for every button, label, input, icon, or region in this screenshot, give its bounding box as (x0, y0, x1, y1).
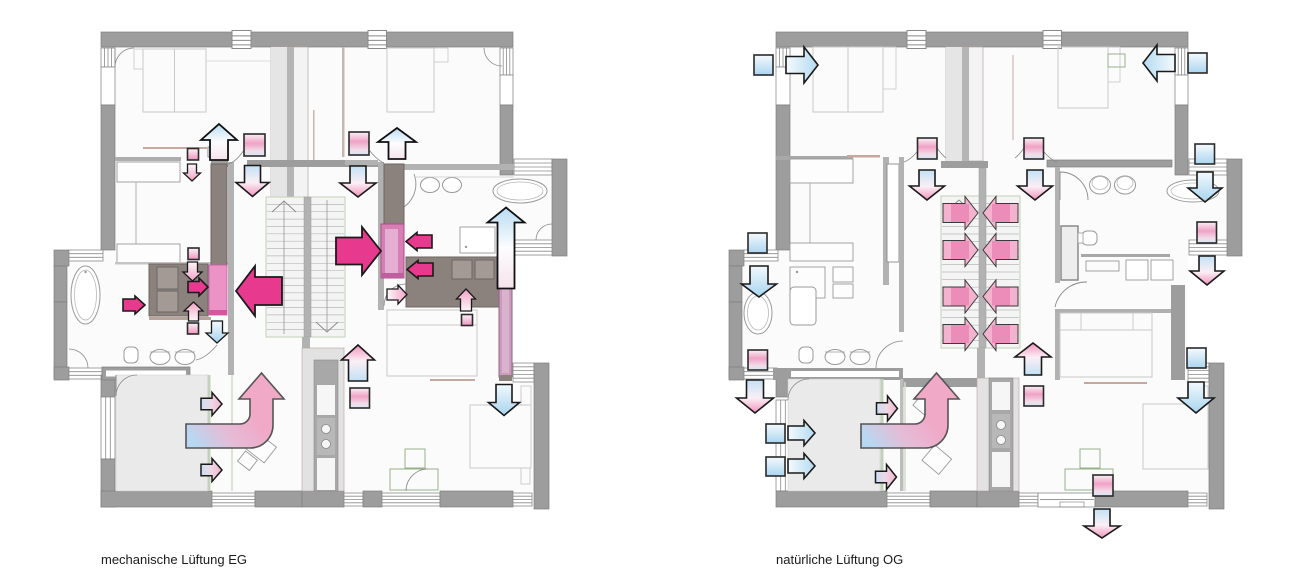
svg-text:mechanische Lüftung EG: mechanische Lüftung EG (101, 552, 247, 567)
svg-text:natürliche Lüftung OG: natürliche Lüftung OG (776, 552, 903, 567)
